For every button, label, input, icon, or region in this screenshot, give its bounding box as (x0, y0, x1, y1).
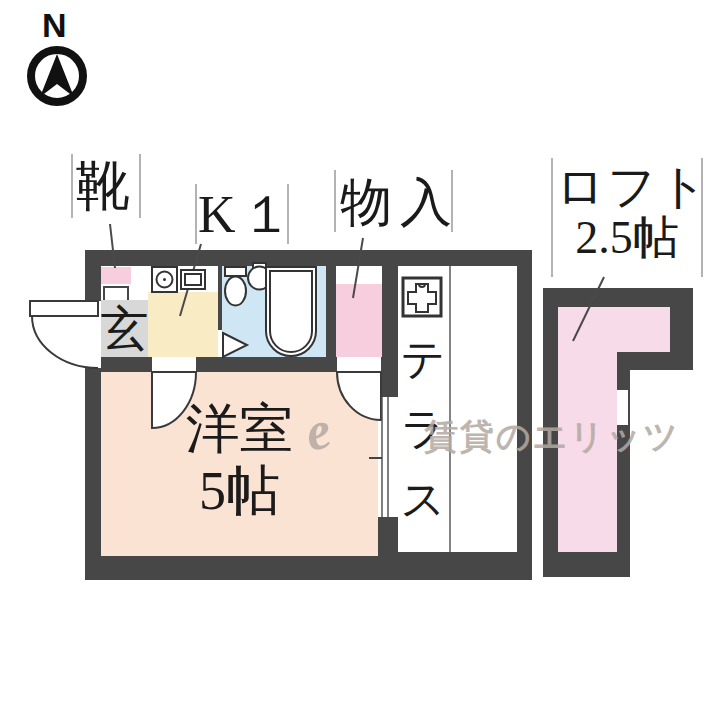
wall-kitchen-bath (218, 266, 222, 330)
kitchen-area (148, 292, 218, 357)
terrace-label-char: ス (400, 470, 446, 529)
genkan-area: 玄 (101, 300, 148, 357)
room-label: 洋室 5帖 (101, 398, 378, 522)
floor-plan: N 玄 (0, 0, 720, 720)
bathroom-area (222, 266, 326, 357)
closet-area (336, 284, 382, 357)
shoes-label: 靴 (76, 158, 130, 215)
wall-bath-closet (326, 266, 336, 357)
closet-door-opening (337, 357, 381, 372)
room-size: 5帖 (101, 460, 378, 522)
kitchen-label: K１ (198, 188, 298, 243)
compass-north-label: N (42, 6, 67, 45)
genkan-label: 玄 (101, 305, 149, 353)
loft-area-bar (558, 307, 617, 552)
shoe-box-area (101, 267, 131, 284)
kitchen-door-opening (152, 357, 196, 372)
terrace-label-char: ラ (400, 400, 446, 459)
terrace-label-char: テ (400, 330, 446, 389)
north-compass-icon (31, 50, 83, 102)
closet-label: 物入 (340, 176, 460, 231)
room-name: 洋室 (101, 398, 378, 460)
loft-label: ロフト (556, 162, 709, 212)
loft-access-opening (617, 390, 628, 425)
loft-size-label: 2.5帖 (551, 214, 703, 262)
entrance-door-opening (85, 301, 101, 368)
terrace-window-opening (378, 397, 398, 517)
